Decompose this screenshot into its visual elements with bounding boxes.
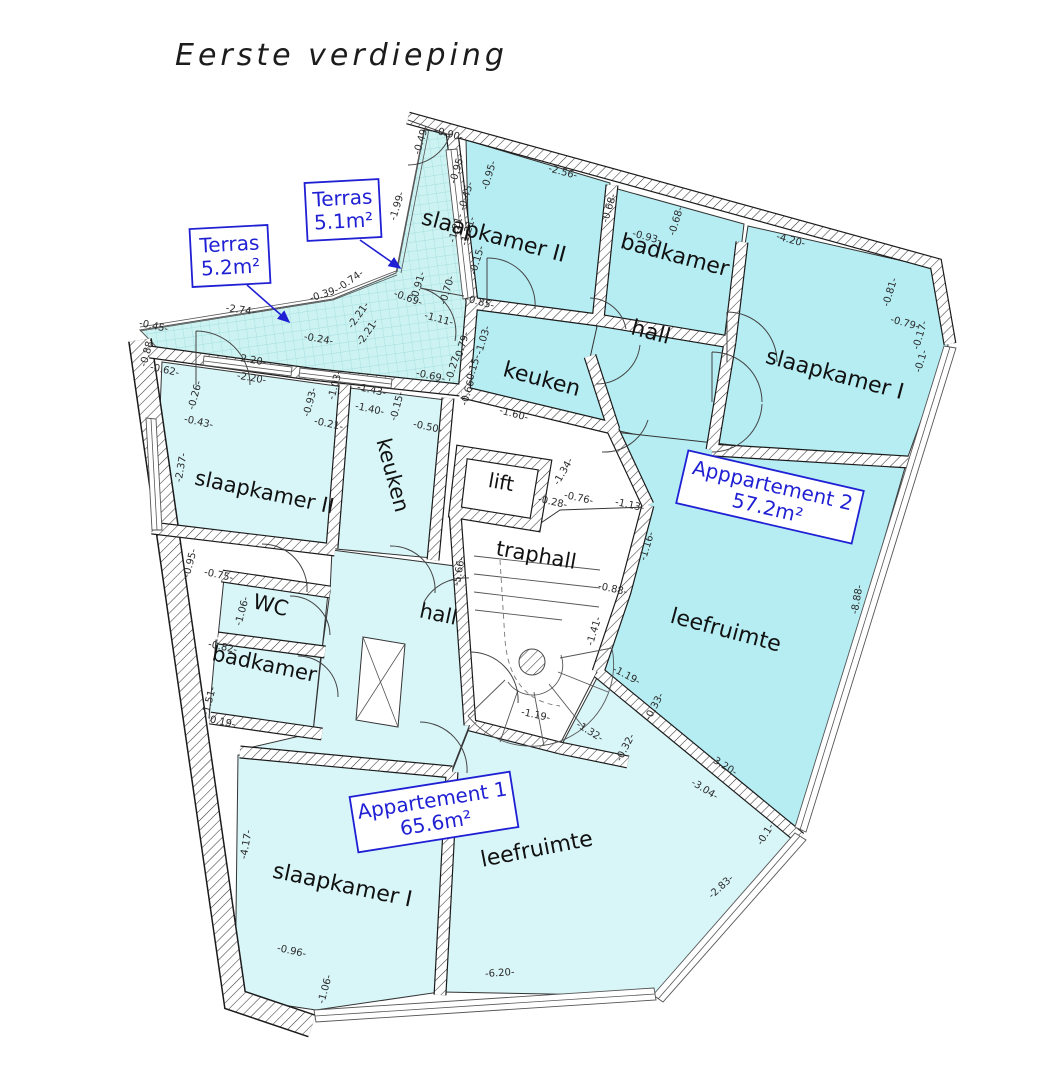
floorplan-page: Eerste verdieping — [0, 0, 1046, 1080]
dimension-label: -0.76- — [563, 490, 595, 507]
dimension-label: -0.95- — [181, 547, 199, 579]
room-label: lift — [486, 468, 516, 496]
annotation-box: Terras5.2m² — [190, 225, 271, 287]
terrace-layer — [140, 128, 470, 390]
annotation-arrow — [360, 240, 400, 268]
dimension-label: -1.34- — [552, 456, 576, 487]
annotation-box: Terras5.1m² — [305, 179, 382, 241]
dimension-label: -6.20- — [485, 967, 516, 980]
svg-text:5.1m²: 5.1m² — [313, 207, 373, 234]
stair-newel — [519, 649, 545, 675]
svg-text:5.2m²: 5.2m² — [200, 253, 260, 280]
plan-title: Eerste verdieping — [175, 38, 508, 73]
floorplan-svg: -0.49--0.90--1.99--0.95--0.45--0.95--1.2… — [0, 0, 1046, 1080]
dimension-label: -1.99- — [388, 190, 407, 222]
dimension-label: -0.75- — [203, 567, 235, 584]
